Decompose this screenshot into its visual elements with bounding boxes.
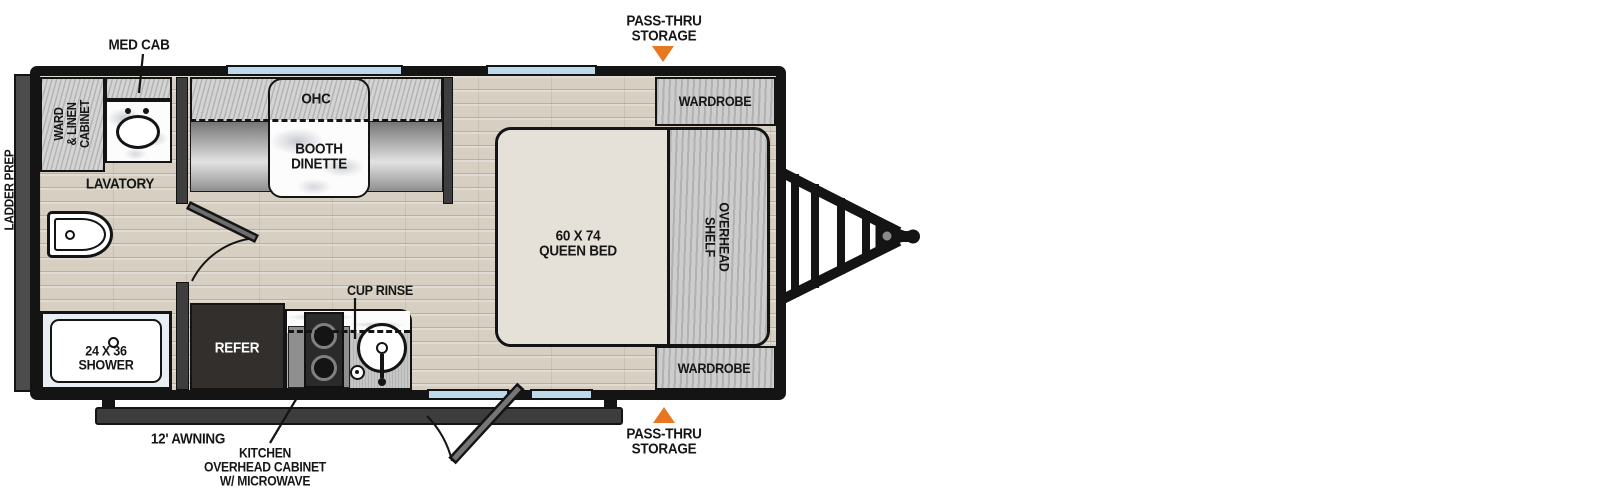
booth-dinette-label: BOOTH DINETTE bbox=[291, 142, 347, 173]
ladder-prep-label: LADDER PREP bbox=[2, 150, 15, 231]
burner-front bbox=[311, 323, 337, 349]
med-cab-label: MED CAB bbox=[108, 37, 169, 52]
window-bottom-left bbox=[427, 389, 509, 400]
cup-rinse-label: CUP RINSE bbox=[347, 283, 413, 297]
awning-bar bbox=[95, 407, 623, 425]
pass-thru-top-arrow-icon bbox=[652, 46, 674, 62]
bed-side-wall-stub bbox=[443, 77, 453, 204]
awning-label: 12' AWNING bbox=[151, 431, 225, 446]
bathroom-wall-lower bbox=[176, 282, 189, 390]
bathroom-wall-upper bbox=[176, 77, 188, 204]
overhead-shelf-label: OVERHEAD SHELF bbox=[703, 202, 732, 271]
ohc-dashed-line bbox=[190, 119, 443, 122]
queen-bed-label: 60 X 74 QUEEN BED bbox=[539, 229, 617, 260]
kitchen-faucet-base-dot bbox=[378, 378, 386, 386]
toilet-bowl-line bbox=[54, 218, 106, 251]
burner-rear bbox=[311, 355, 337, 381]
cup-rinse-basin bbox=[350, 365, 365, 380]
lav-faucet-dot-left bbox=[125, 108, 131, 114]
lav-sink bbox=[116, 115, 160, 149]
ohc-label: OHC bbox=[301, 91, 330, 106]
pass-thru-top-label: PASS-THRU STORAGE bbox=[626, 14, 701, 45]
hitch-ball bbox=[906, 230, 920, 244]
window-top-bed bbox=[486, 65, 597, 76]
window-top-dinette bbox=[226, 65, 403, 76]
lav-faucet-dot-right bbox=[143, 108, 149, 114]
wardrobe-top-label: WARDROBE bbox=[679, 94, 752, 108]
shower-label: 24 X 36 SHOWER bbox=[78, 344, 133, 373]
refer-label: REFER bbox=[215, 340, 259, 355]
pass-thru-bottom-arrow-icon bbox=[653, 407, 675, 423]
lavatory-label: LAVATORY bbox=[86, 176, 154, 191]
kitchen-overhead-label: KITCHEN OVERHEAD CABINET W/ MICROWAVE bbox=[204, 446, 326, 487]
counter-dashed-line bbox=[288, 330, 410, 333]
cooktop bbox=[304, 312, 344, 388]
cup-rinse-dot bbox=[355, 370, 359, 374]
pass-thru-bottom-label: PASS-THRU STORAGE bbox=[626, 427, 701, 458]
wardrobe-bottom-label: WARDROBE bbox=[678, 361, 751, 375]
hitch-frame bbox=[783, 173, 920, 299]
toilet bbox=[47, 211, 113, 258]
toilet-flush-dot bbox=[65, 230, 75, 240]
medicine-cabinet bbox=[105, 77, 172, 100]
ward-linen-cabinet-label: WARD & LINEN CABINET bbox=[53, 100, 91, 148]
window-bottom-right bbox=[530, 389, 593, 400]
kitchen-faucet-head bbox=[376, 342, 388, 354]
kitchen-faucet-stem bbox=[380, 354, 384, 378]
rv-floorplan: LADDER PREP WARD & LINEN CABINET LAVATOR… bbox=[0, 0, 1600, 489]
hitch-coupler bbox=[879, 222, 905, 250]
